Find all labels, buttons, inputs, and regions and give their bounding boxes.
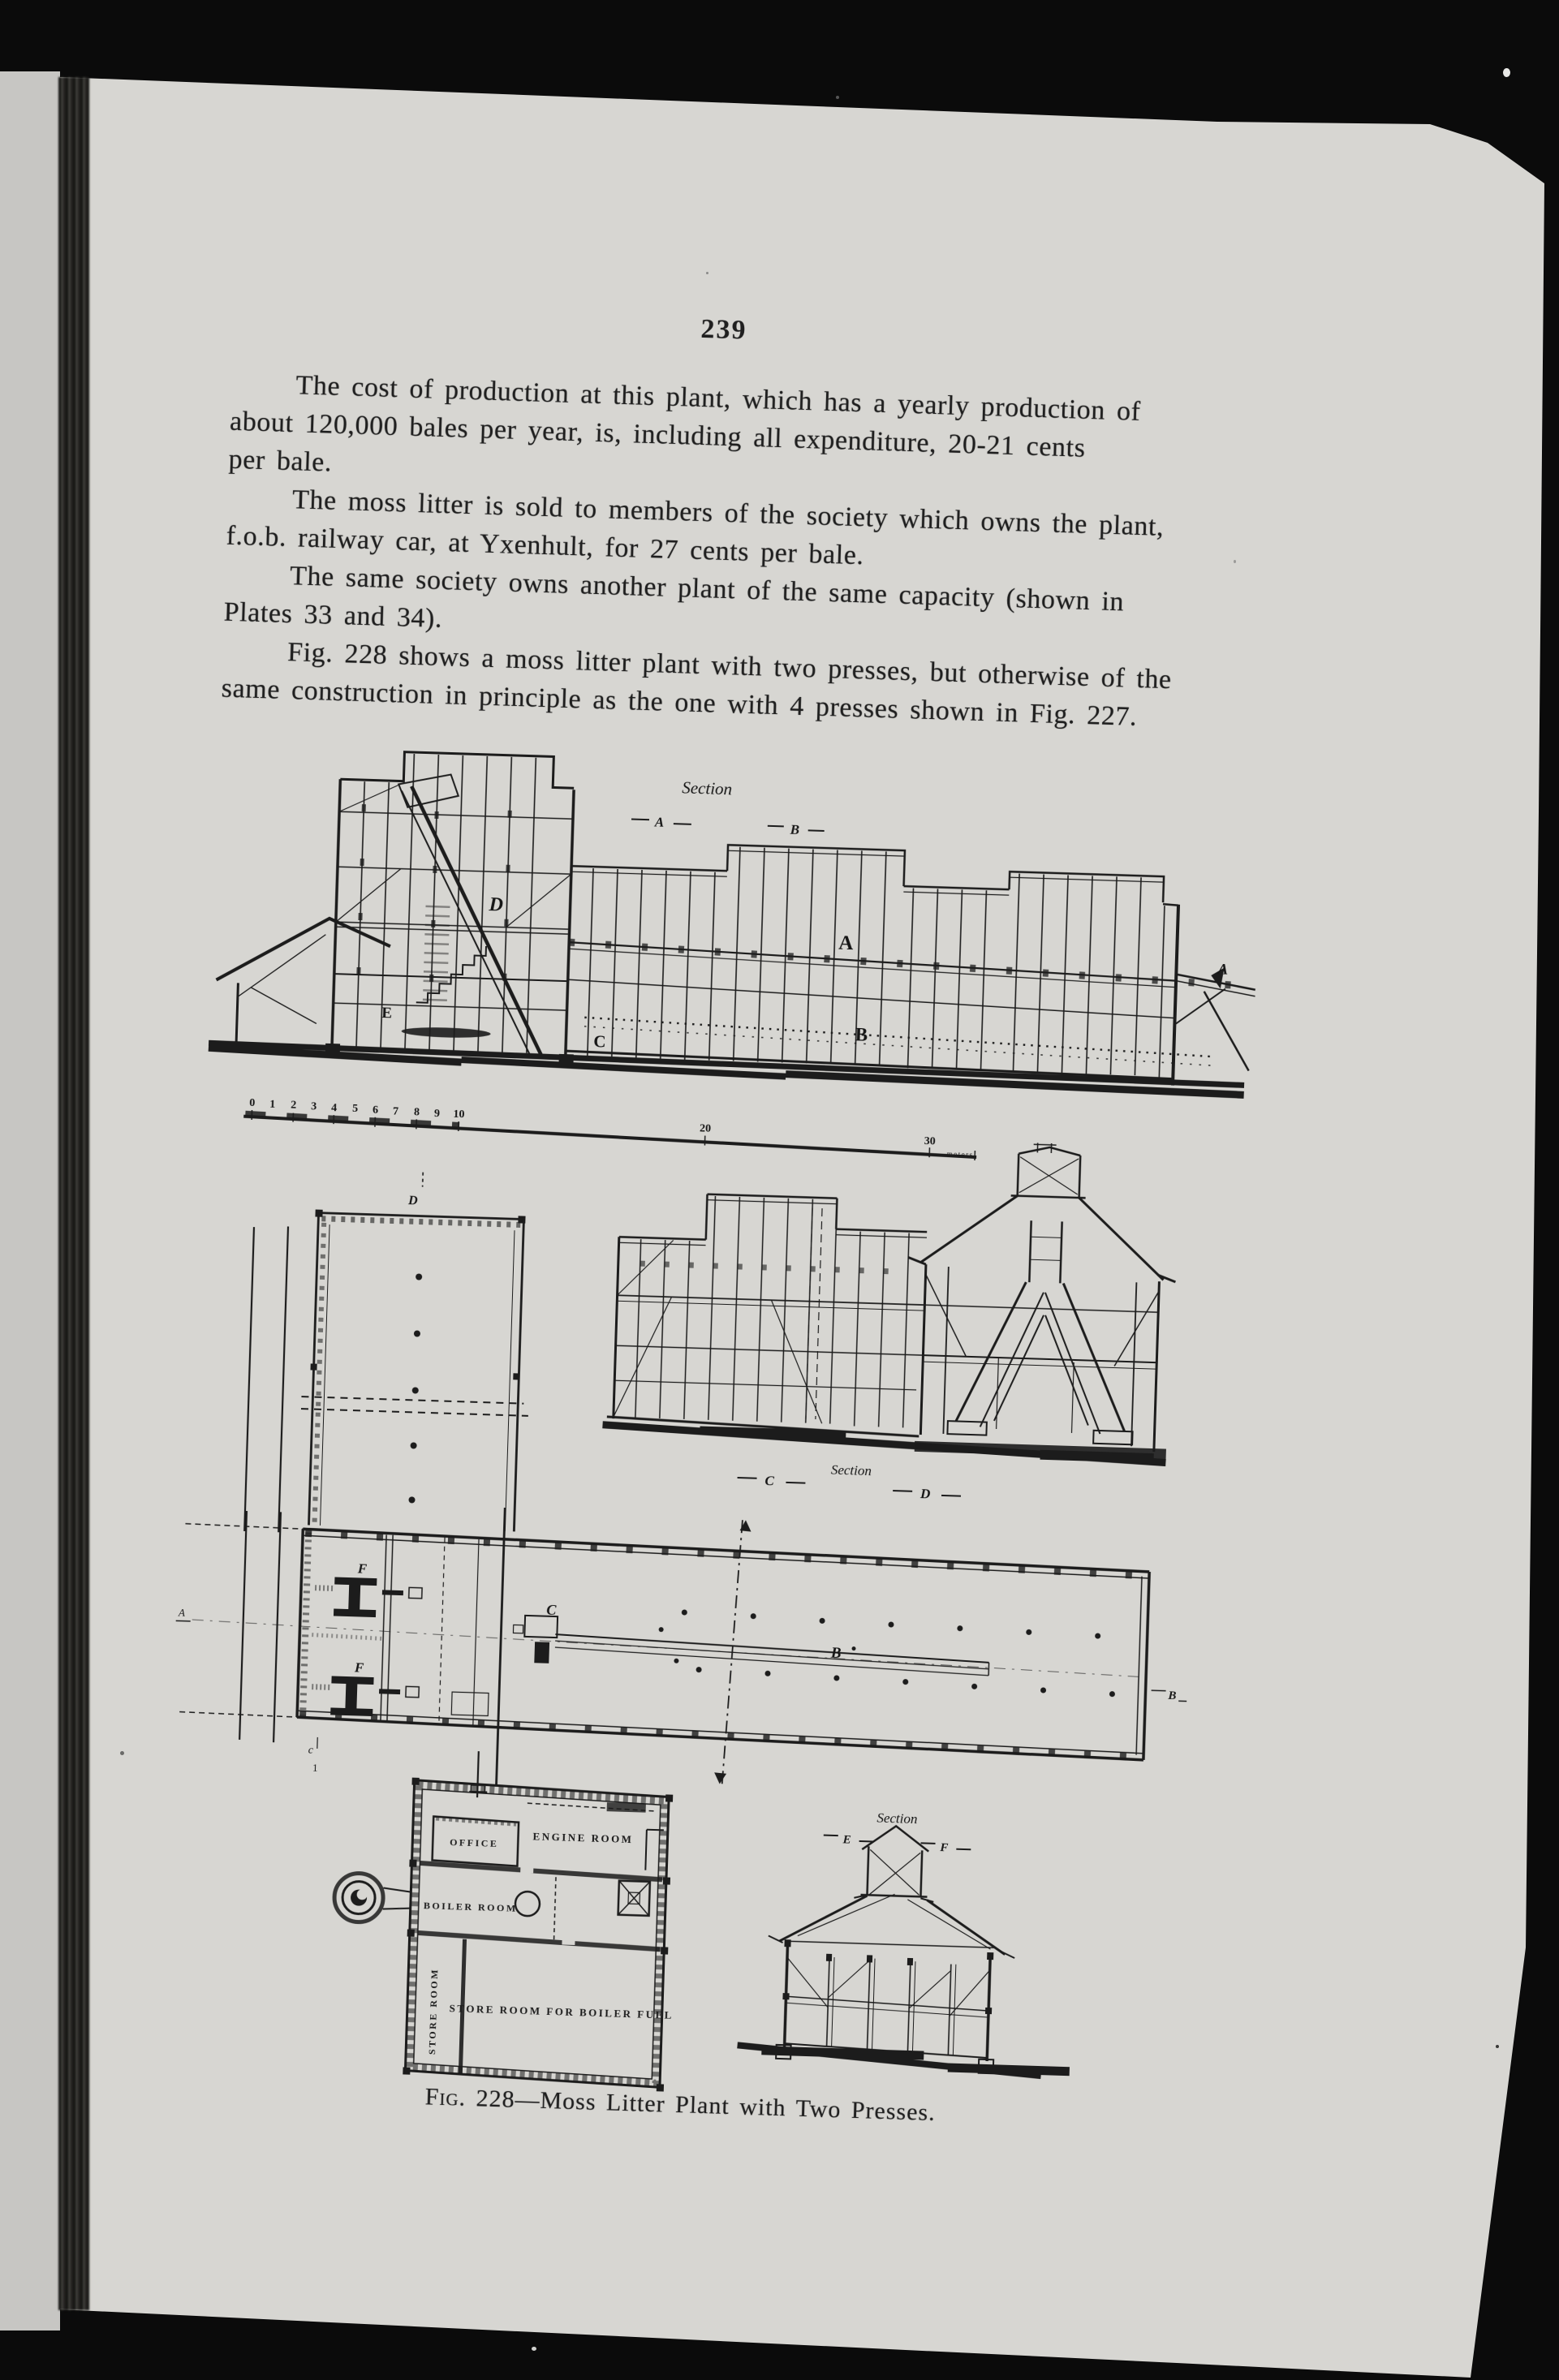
cd-mark-c: C xyxy=(764,1473,775,1488)
elevation-section-ab: Section A B D A A B C E xyxy=(201,726,1267,1113)
scale-tick: 9 xyxy=(434,1108,440,1120)
gallery-plan: D xyxy=(297,1168,536,1532)
plan-label-f1: F xyxy=(357,1560,368,1576)
section-mark-a: A xyxy=(654,814,665,829)
room-store: STORE ROOM xyxy=(426,1968,440,2055)
caption-prefix: Fig. 228 xyxy=(424,2083,515,2112)
left-shed xyxy=(214,915,391,1057)
scale-tick: 8 xyxy=(414,1106,420,1118)
room-office: OFFICE xyxy=(450,1836,499,1849)
page-content: 239 The cost of production at this plant… xyxy=(0,0,1559,2380)
paper-speck xyxy=(836,96,839,99)
railway-tracks xyxy=(244,1225,288,1532)
section-ef: Section E F xyxy=(737,1805,1078,2077)
scale-tick: 10 xyxy=(453,1108,464,1121)
press-and-conveyor: C B xyxy=(512,1600,1118,1697)
scale-tick: 4 xyxy=(331,1102,337,1114)
tower xyxy=(325,750,584,1064)
ef-mark-e: E xyxy=(842,1833,851,1846)
bottom-figures: OFFICE ENGINE ROOM BOILER ROOM xyxy=(305,1746,1135,2121)
plan-mark-a: A xyxy=(178,1606,185,1618)
left-extension-lines xyxy=(179,1509,304,1743)
room-fuel: STORE ROOM FOR BOILER FUEL xyxy=(449,2002,674,2021)
ef-mark-f: F xyxy=(939,1841,949,1854)
section-title: Section xyxy=(682,777,733,798)
paper-speck xyxy=(1503,68,1510,77)
plan-mark-c1-top: c xyxy=(308,1745,314,1757)
scale-tick: 2 xyxy=(291,1099,296,1111)
main-building xyxy=(565,840,1259,1087)
label-a-right: A xyxy=(1217,961,1228,978)
paper-speck xyxy=(532,2347,536,2351)
room-boiler: BOILER ROOM xyxy=(424,1900,518,1914)
ef-title: Section xyxy=(876,1810,918,1827)
flywheel xyxy=(334,1873,411,1924)
gallery-mark-d: D xyxy=(407,1194,419,1207)
scale-tick: 3 xyxy=(311,1100,317,1113)
scanned-book-page: 239 The cost of production at this plant… xyxy=(0,0,1559,2380)
paper-speck xyxy=(706,272,708,274)
cd-mark-d: D xyxy=(919,1486,931,1501)
plan-label-c: C xyxy=(546,1602,558,1618)
paper-speck xyxy=(1496,2045,1499,2048)
paper-speck xyxy=(1234,560,1236,563)
boiler-house-plan: OFFICE ENGINE ROOM BOILER ROOM xyxy=(403,1778,681,2092)
label-e: E xyxy=(381,1005,392,1022)
scale-tick: 0 xyxy=(249,1097,255,1109)
page-number: 239 xyxy=(650,312,797,348)
label-d: D xyxy=(488,894,503,916)
plan-label-b: B xyxy=(830,1645,842,1662)
plan-mark-b: B xyxy=(1167,1689,1177,1702)
cd-title: Section xyxy=(831,1462,872,1479)
middle-figures: D xyxy=(177,1120,1204,1561)
section-mark-b: B xyxy=(789,822,799,837)
body-text: The cost of production at this plant, wh… xyxy=(221,364,1384,743)
plan-label-f2: F xyxy=(354,1659,365,1675)
scale-tick: 7 xyxy=(393,1105,398,1117)
scale-tick-20: 20 xyxy=(700,1122,711,1134)
section-cd-elevation xyxy=(602,1130,1180,1464)
scale-tick: 6 xyxy=(373,1104,378,1117)
label-a-mid: A xyxy=(838,932,854,955)
scale-tick: 1 xyxy=(269,1099,275,1111)
paper-speck xyxy=(120,1751,124,1755)
label-b: B xyxy=(855,1024,868,1044)
scale-tick: 5 xyxy=(352,1103,358,1115)
room-engine: ENGINE ROOM xyxy=(532,1830,633,1845)
label-c: C xyxy=(593,1031,606,1051)
section-cd-label: C Section D xyxy=(737,1459,962,1503)
